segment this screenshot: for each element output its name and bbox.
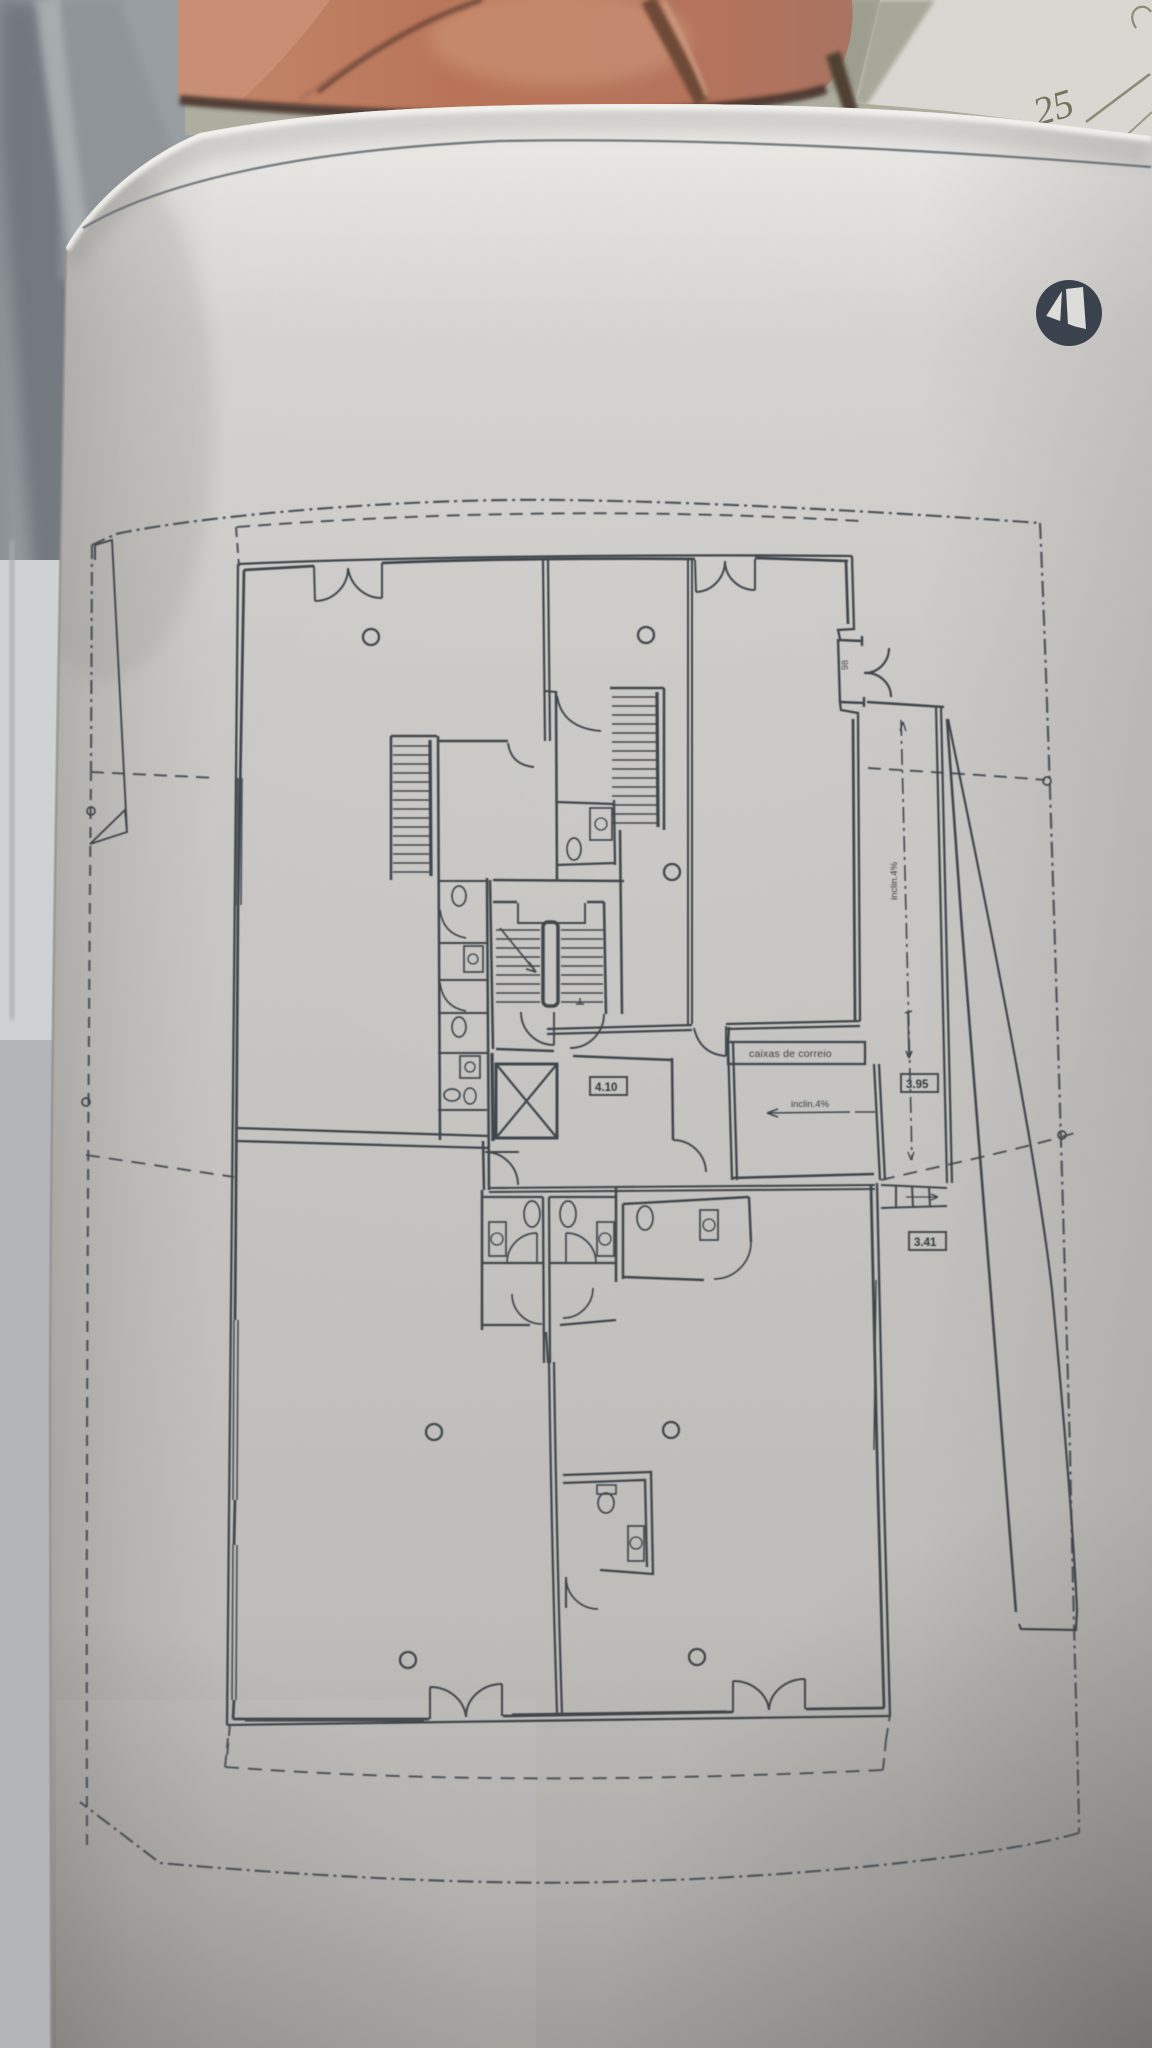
svg-text:caixas de correio: caixas de correio [749, 1048, 832, 1060]
svg-text:3.41: 3.41 [914, 1237, 937, 1249]
svg-text:4.10: 4.10 [595, 1082, 617, 1094]
svg-text:inclin.4%: inclin.4% [791, 1099, 830, 1110]
svg-text:inclin.4%: inclin.4% [889, 861, 900, 900]
svg-text:98: 98 [840, 660, 850, 670]
